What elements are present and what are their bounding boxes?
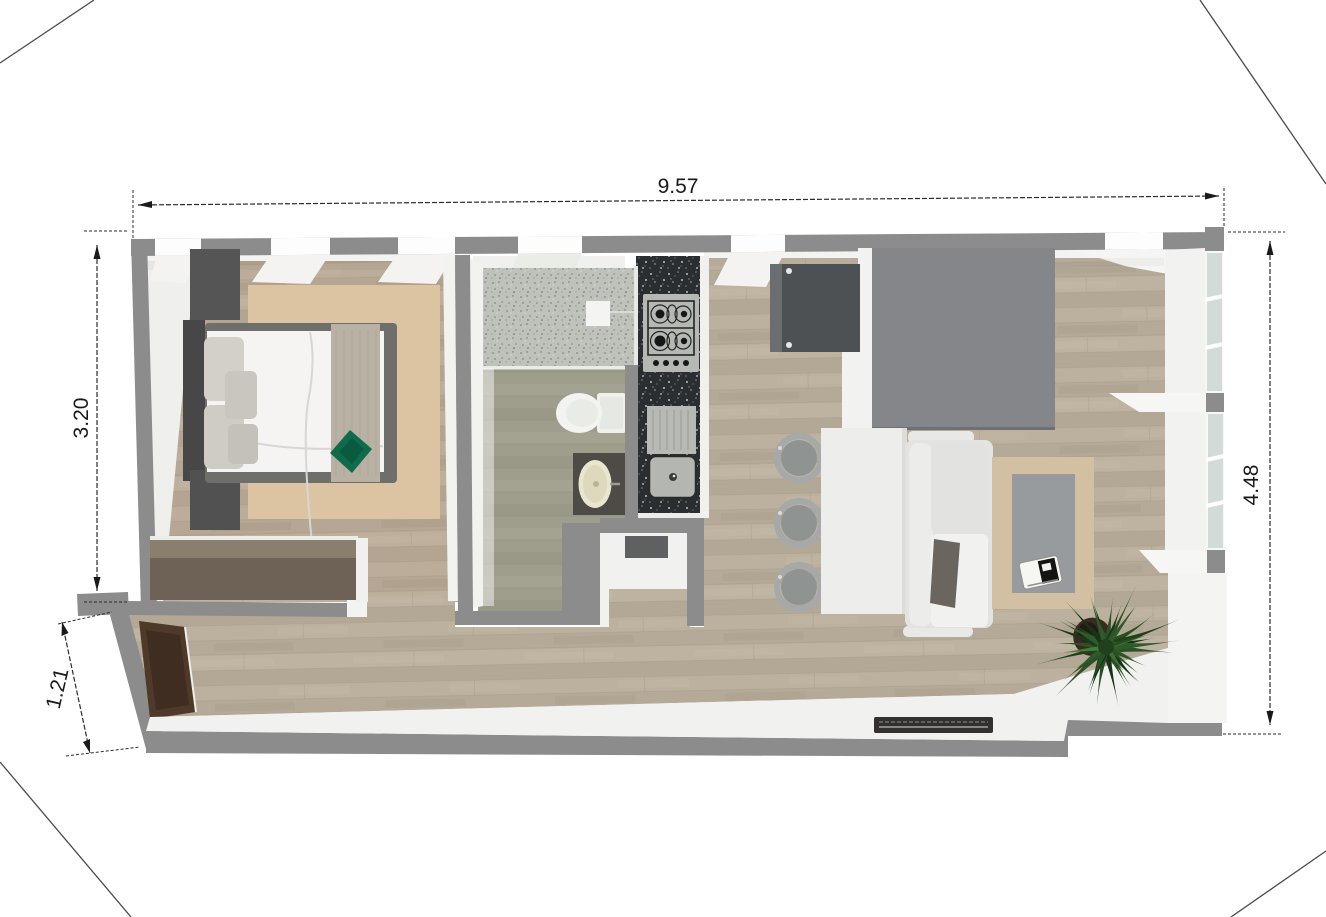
svg-text:3.20: 3.20 bbox=[70, 398, 93, 439]
svg-text:9.57: 9.57 bbox=[658, 175, 699, 198]
svg-text:4.48: 4.48 bbox=[1240, 465, 1263, 506]
